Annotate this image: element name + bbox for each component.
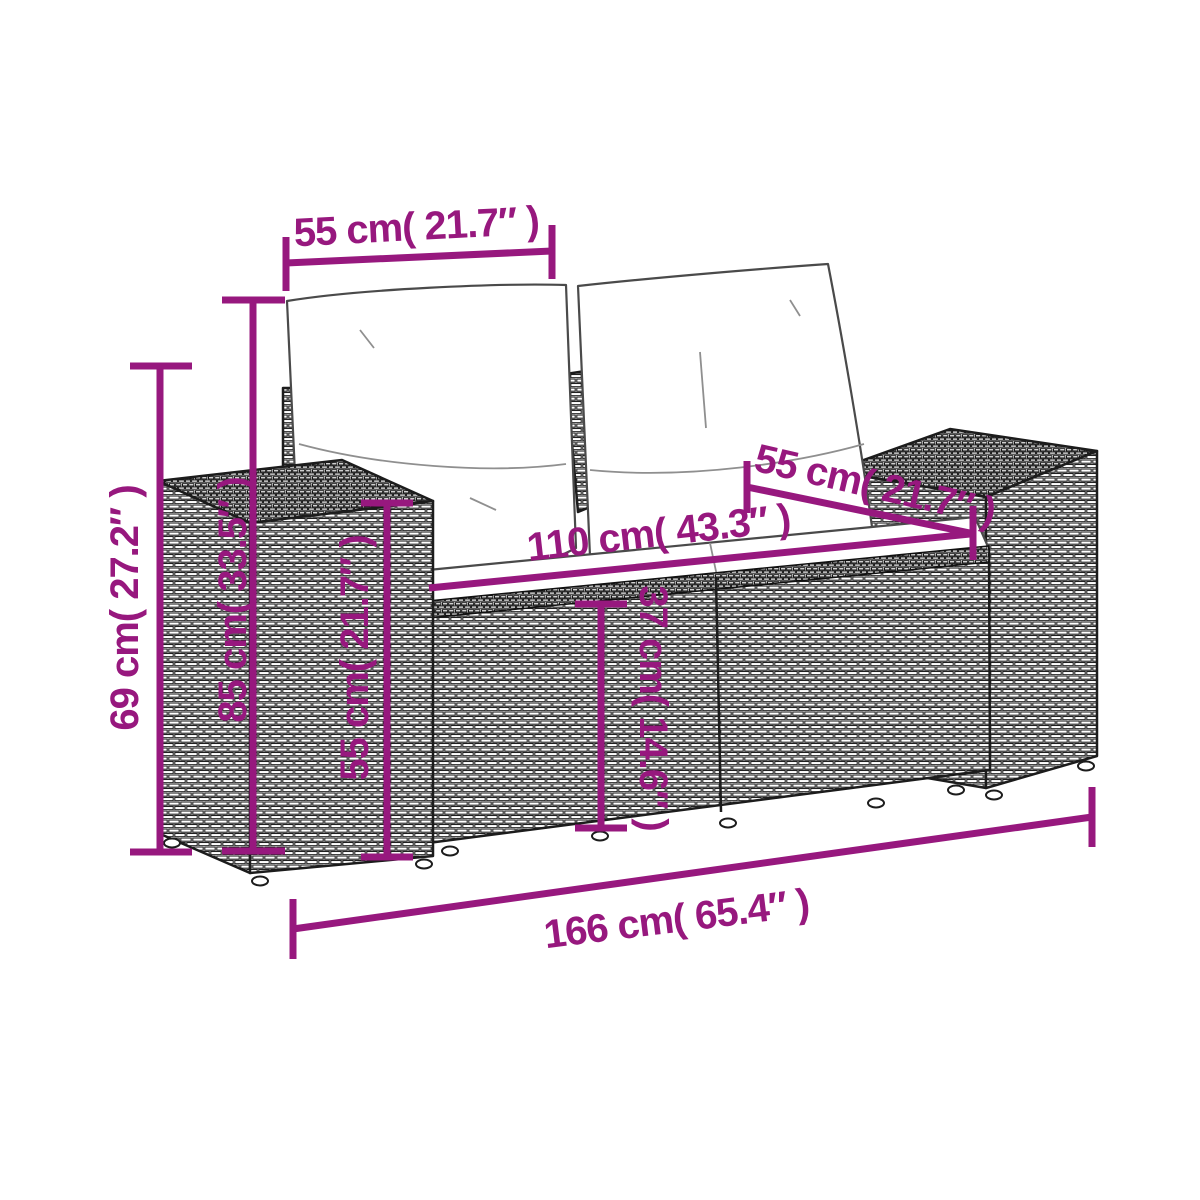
foot xyxy=(1078,762,1094,771)
dimension-back-cushion-width: 55 cm( 21.7″ ) xyxy=(286,199,552,291)
dim-label-armrest-height: 55 cm( 21.7″ ) xyxy=(333,535,377,780)
dim-label-side-height: 69 cm( 27.2″ ) xyxy=(103,485,147,730)
foot xyxy=(868,799,884,808)
sofa-illustration xyxy=(158,264,1097,886)
foot xyxy=(252,877,268,886)
dim-label-overall-height: 85 cm( 33.5″ ) xyxy=(211,477,255,722)
foot xyxy=(416,860,432,869)
foot xyxy=(948,786,964,795)
right-armrest-front-face xyxy=(986,451,1097,788)
left-armrest xyxy=(158,460,433,873)
dim-label-back-cushion-width: 55 cm( 21.7″ ) xyxy=(293,199,540,256)
dim-label-seat-height: 37 cm( 14.6″ ) xyxy=(631,585,675,830)
foot xyxy=(442,847,458,856)
foot xyxy=(164,839,180,848)
foot xyxy=(592,832,608,841)
dimension-diagram-page: 55 cm( 21.7″ ) 69 cm( 27.2″ ) 85 cm( 33.… xyxy=(0,0,1200,1200)
foot xyxy=(720,819,736,828)
dim-label-overall-width: 166 cm( 65.4″ ) xyxy=(541,881,811,957)
foot xyxy=(986,791,1002,800)
sofa-dimension-diagram: 55 cm( 21.7″ ) 69 cm( 27.2″ ) 85 cm( 33.… xyxy=(0,0,1200,1200)
